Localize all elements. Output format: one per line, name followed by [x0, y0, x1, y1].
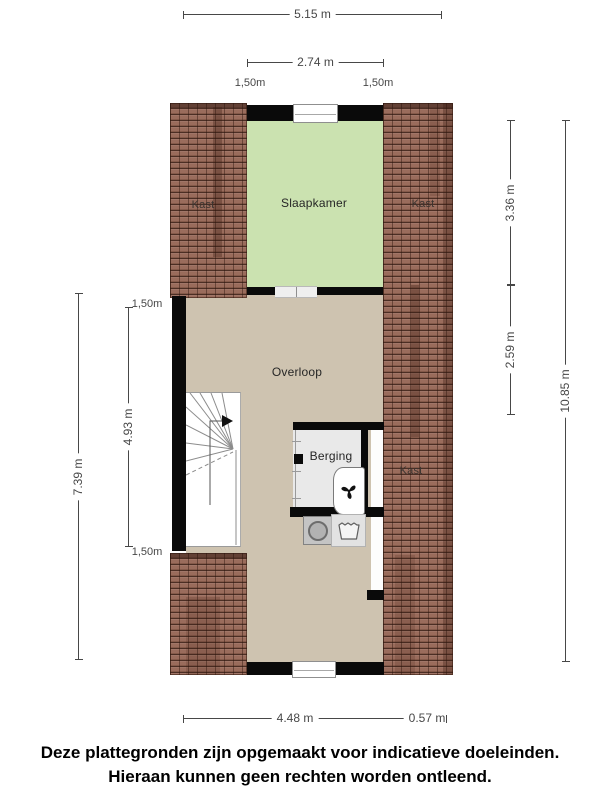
room-label-overloop: Overloop [272, 365, 322, 379]
fan-icon [340, 482, 358, 500]
dimension-label: 5.15 m [289, 7, 336, 21]
ventilation-unit [333, 467, 365, 515]
dimension-label: 2.59 m [503, 327, 517, 374]
dimension-top-inner: 2.74 m [247, 62, 384, 63]
floor-plan-page: Kast Slaapkamer Kast Overloop Berging Ka… [0, 0, 600, 800]
roof-right [383, 103, 453, 675]
dimension-label-small: 1,50m [132, 298, 163, 310]
wall [293, 422, 384, 430]
room-label-kast-top-right: Kast [412, 198, 435, 210]
dimension-right-total: 10.85 m [565, 120, 566, 662]
dimension-label: 7.39 m [71, 453, 85, 500]
dimension-label: 0.57 m [404, 711, 451, 725]
footer-line-1: Deze plattegronden zijn opgemaakt voor i… [0, 741, 600, 765]
staircase-treads [186, 393, 240, 546]
dimension-label: 10.85 m [558, 364, 572, 417]
sink-icon [331, 514, 366, 547]
dimension-label: 3.36 m [503, 179, 517, 226]
washer-drum [308, 521, 328, 541]
dimension-top-total: 5.15 m [183, 14, 442, 15]
window [292, 661, 336, 678]
window [293, 104, 338, 123]
dimension-right-lower: 2.59 m [510, 285, 511, 415]
room-label-slaapkamer: Slaapkamer [281, 196, 347, 210]
dimension-label: 2.74 m [292, 55, 339, 69]
roof-ridge [186, 597, 220, 675]
roof-ridge [395, 555, 415, 675]
opening-tick [292, 498, 301, 499]
dimension-label-small: 1,50m [363, 77, 394, 89]
staircase [186, 392, 241, 547]
washing-machine-icon [303, 516, 332, 545]
dimension-bottom-main: 4.48 m [183, 718, 407, 719]
dimension-label: 4.48 m [272, 711, 319, 725]
laundry-tub-glyph [338, 521, 360, 541]
opening-tick [292, 471, 301, 472]
footer-line-2: Hieraan kunnen geen rechten worden ontle… [0, 765, 600, 789]
wall-post [294, 454, 303, 464]
opening-tick [292, 441, 301, 442]
room-label-kast-middle-right: Kast [400, 465, 423, 477]
footer-disclaimer: Deze plattegronden zijn opgemaakt voor i… [0, 741, 600, 789]
dimension-label-small: 1,50m [235, 77, 266, 89]
dimension-label-small: 1,50m [132, 546, 163, 558]
door-opening [275, 286, 317, 298]
stairs-arrow-icon [222, 415, 233, 427]
wall [172, 296, 186, 551]
dimension-right-upper: 3.36 m [510, 120, 511, 285]
roof-ridge [411, 285, 419, 437]
dimension-label: 4.93 m [121, 404, 135, 451]
roof-ridge [443, 103, 453, 675]
roof-ridge [430, 108, 440, 196]
dimension-left-total: 7.39 m [78, 293, 79, 660]
roof-ridge [213, 107, 222, 257]
berging-open-side [295, 430, 297, 507]
room-label-berging: Berging [310, 449, 353, 463]
roof-bottom-left [170, 553, 247, 675]
dimension-bottom-right: 0.57 m [407, 718, 447, 719]
wall [367, 590, 384, 600]
dimension-left-inner: 4.93 m [128, 307, 129, 547]
room-label-kast-top-left: Kast [192, 199, 215, 211]
